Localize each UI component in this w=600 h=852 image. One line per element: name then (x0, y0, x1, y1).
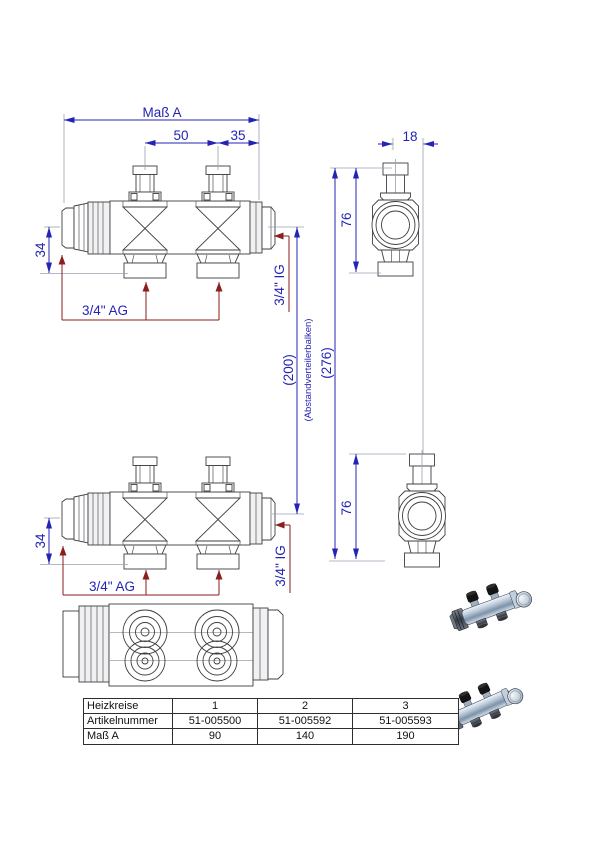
dim-34-middle: 34 (33, 533, 48, 549)
row-value: 1 (173, 699, 258, 714)
front-view-top: Maß A 50 35 34 3/4" AG 3/4" IG (33, 105, 289, 320)
dim-200: (200) (281, 354, 296, 386)
dim-276: (276) (319, 347, 334, 379)
table-row: Heizkreise 1 2 3 (84, 699, 459, 714)
row-value: 140 (258, 729, 353, 744)
spec-table: Heizkreise 1 2 3 Artikelnummer 51-005500… (83, 698, 459, 745)
dim-35: 35 (230, 128, 245, 143)
row-value: 90 (173, 729, 258, 744)
row-label: Heizkreise (84, 699, 173, 714)
table-row: Maß A 90 140 190 (84, 729, 459, 744)
label-ig-top: 3/4" IG (272, 264, 287, 306)
row-value: 2 (258, 699, 353, 714)
label-spacer-bar: (Abstandverteilerbalken) (303, 319, 314, 422)
row-value: 51-005500 (173, 714, 258, 729)
plan-view (63, 604, 283, 686)
dim-76-upper: 76 (339, 212, 354, 227)
front-view-middle: 34 3/4" AG 3/4" IG (33, 457, 290, 595)
row-value: 3 (353, 699, 459, 714)
row-value: 51-005593 (353, 714, 459, 729)
dim-50: 50 (173, 128, 188, 143)
dim-18: 18 (402, 129, 417, 144)
label-ig-middle: 3/4" IG (273, 545, 288, 587)
dim-34-top: 34 (33, 242, 48, 258)
product-photo-1 (444, 573, 535, 637)
dim-mass-a: Maß A (142, 105, 181, 120)
row-value: 190 (353, 729, 459, 744)
row-value: 51-005592 (258, 714, 353, 729)
table-row: Artikelnummer 51-005500 51-005592 51-005… (84, 714, 459, 729)
technical-drawing-page: Maß A 50 35 34 3/4" AG 3/4" IG 34 (0, 0, 600, 852)
label-ag-top: 3/4" AG (82, 303, 128, 318)
row-label: Artikelnummer (84, 714, 173, 729)
label-ag-middle: 3/4" AG (89, 579, 135, 594)
row-label: Maß A (84, 729, 173, 744)
dim-76-lower: 76 (339, 500, 354, 515)
